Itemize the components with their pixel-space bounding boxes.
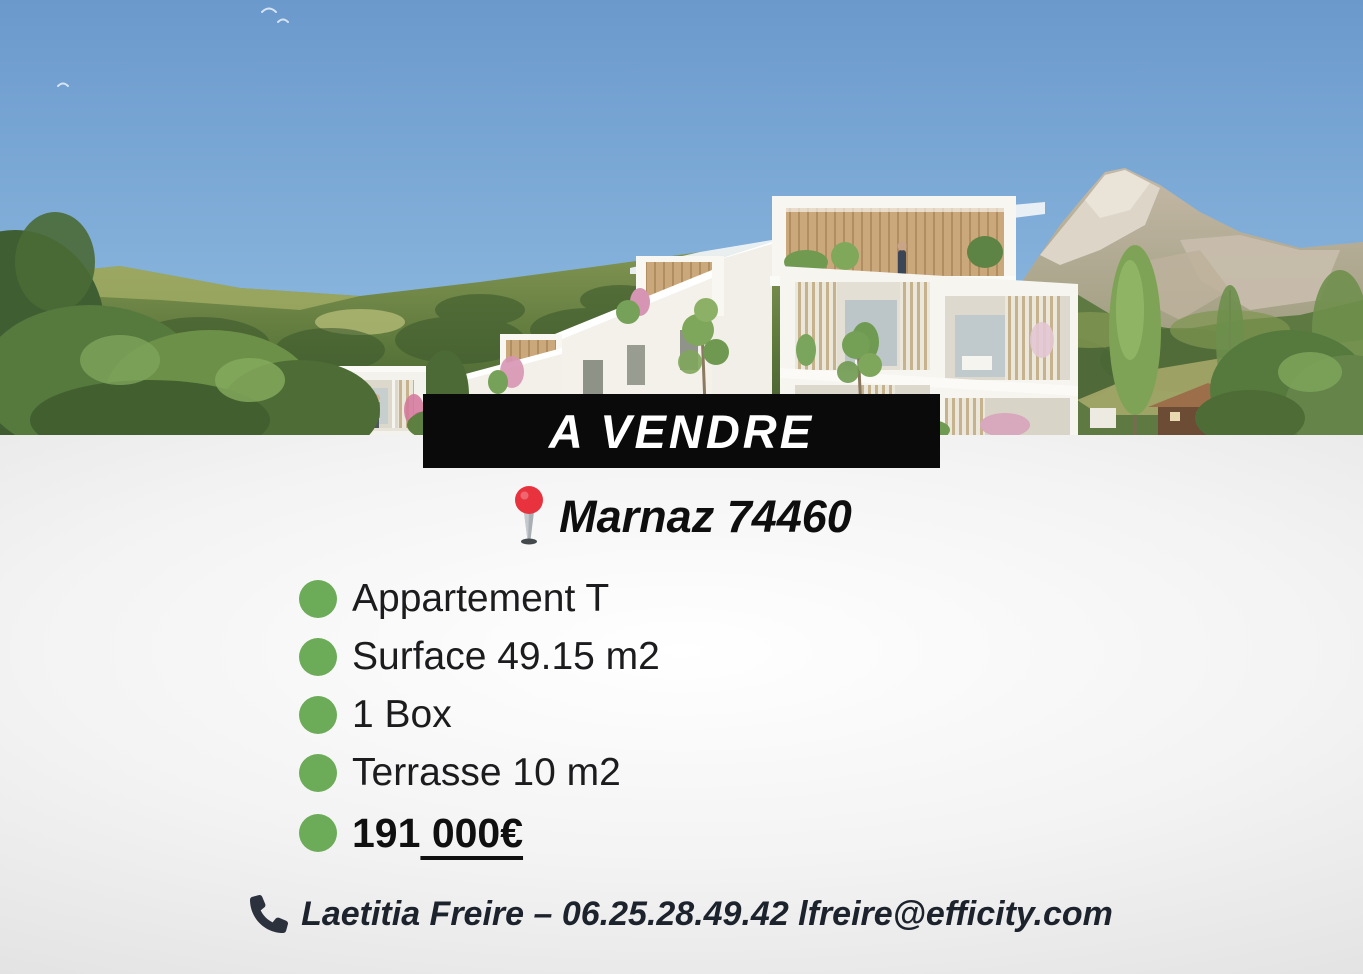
- green-bullet-icon: [299, 696, 337, 734]
- property-photo: [0, 0, 1363, 435]
- feature-item: Surface 49.15 m2: [299, 628, 660, 686]
- photo-scene: [0, 0, 1363, 435]
- feature-item: 1 Box: [299, 686, 660, 744]
- feature-item: Appartement T: [299, 570, 660, 628]
- green-bullet-icon: [299, 814, 337, 852]
- price-item: 191 000€: [299, 804, 660, 862]
- location-label: Marnaz 74460: [559, 491, 852, 543]
- phone-icon: [250, 895, 288, 933]
- price-underlined: 000€: [420, 810, 523, 856]
- price-value: 191 000€: [352, 810, 523, 857]
- feature-label: 1 Box: [352, 693, 452, 737]
- feature-item: Terrasse 10 m2: [299, 744, 660, 802]
- green-bullet-icon: [299, 638, 337, 676]
- feature-label: Surface 49.15 m2: [352, 635, 660, 679]
- contact-row: Laetitia Freire – 06.25.28.49.42 lfreire…: [0, 884, 1363, 944]
- feature-label: Terrasse 10 m2: [352, 751, 621, 795]
- green-bullet-icon: [299, 580, 337, 618]
- feature-list: Appartement T Surface 49.15 m2 1 Box Ter…: [299, 570, 660, 862]
- location-row: Marnaz 74460: [0, 484, 1363, 550]
- location-pin-icon: [511, 485, 547, 549]
- sale-banner: A VENDRE: [423, 394, 940, 468]
- price-prefix: 191: [352, 810, 420, 856]
- contact-label: Laetitia Freire – 06.25.28.49.42 lfreire…: [301, 895, 1113, 934]
- flyer-canvas: A VENDRE Marnaz 74460 Appartement T Surf…: [0, 0, 1363, 974]
- green-bullet-icon: [299, 754, 337, 792]
- feature-label: Appartement T: [352, 577, 609, 621]
- sale-banner-label: A VENDRE: [549, 404, 814, 459]
